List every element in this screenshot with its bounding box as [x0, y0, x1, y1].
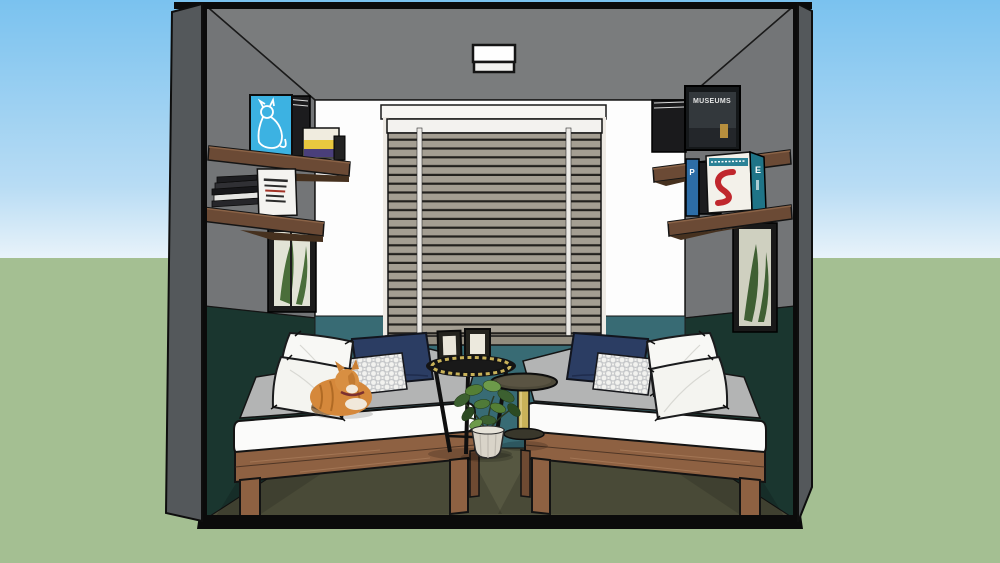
- right-exterior-wall[interactable]: [798, 4, 812, 522]
- window-frame-top: [381, 105, 606, 119]
- chair-book-spine-letter: E: [755, 165, 761, 175]
- cat-muzzle: [346, 385, 358, 394]
- museums-cover-light: [720, 124, 728, 138]
- museums-title: MUSEUMS: [693, 98, 731, 105]
- pedestal-top-inner: [497, 375, 551, 387]
- right-shelf-lower-books[interactable]: P E: [686, 152, 766, 216]
- stacked-books[interactable]: [212, 175, 260, 207]
- museums-cover-floor: [689, 128, 736, 147]
- pot-rim: [472, 426, 504, 434]
- spine-mark: [756, 180, 759, 190]
- ceiling-light[interactable]: [473, 45, 515, 72]
- blue-book[interactable]: P: [686, 159, 699, 216]
- right-framed-art[interactable]: [733, 223, 777, 332]
- cat-poster[interactable]: [250, 95, 292, 156]
- framed-photo-right[interactable]: [465, 329, 490, 359]
- museums-book[interactable]: MUSEUMS: [685, 86, 740, 150]
- left-exterior-wall[interactable]: [166, 4, 202, 521]
- table-top-center: [439, 360, 503, 372]
- chair-design-book[interactable]: E: [706, 152, 766, 213]
- room-front-edge-bottom: [197, 515, 803, 529]
- room-front-edge-top: [174, 2, 812, 9]
- cat-chest: [345, 398, 367, 410]
- black-book-small[interactable]: [334, 136, 345, 160]
- white-magazine[interactable]: [255, 167, 300, 218]
- blinds-tape-left: [417, 128, 422, 338]
- 3d-room-viewport: MUSEUMS P E: [0, 0, 1000, 563]
- pedestal-shadow: [500, 441, 548, 451]
- pedestal-base: [504, 429, 544, 440]
- blinds-tape-right: [566, 128, 571, 338]
- blue-book-letter: P: [689, 168, 695, 177]
- window[interactable]: [381, 105, 606, 345]
